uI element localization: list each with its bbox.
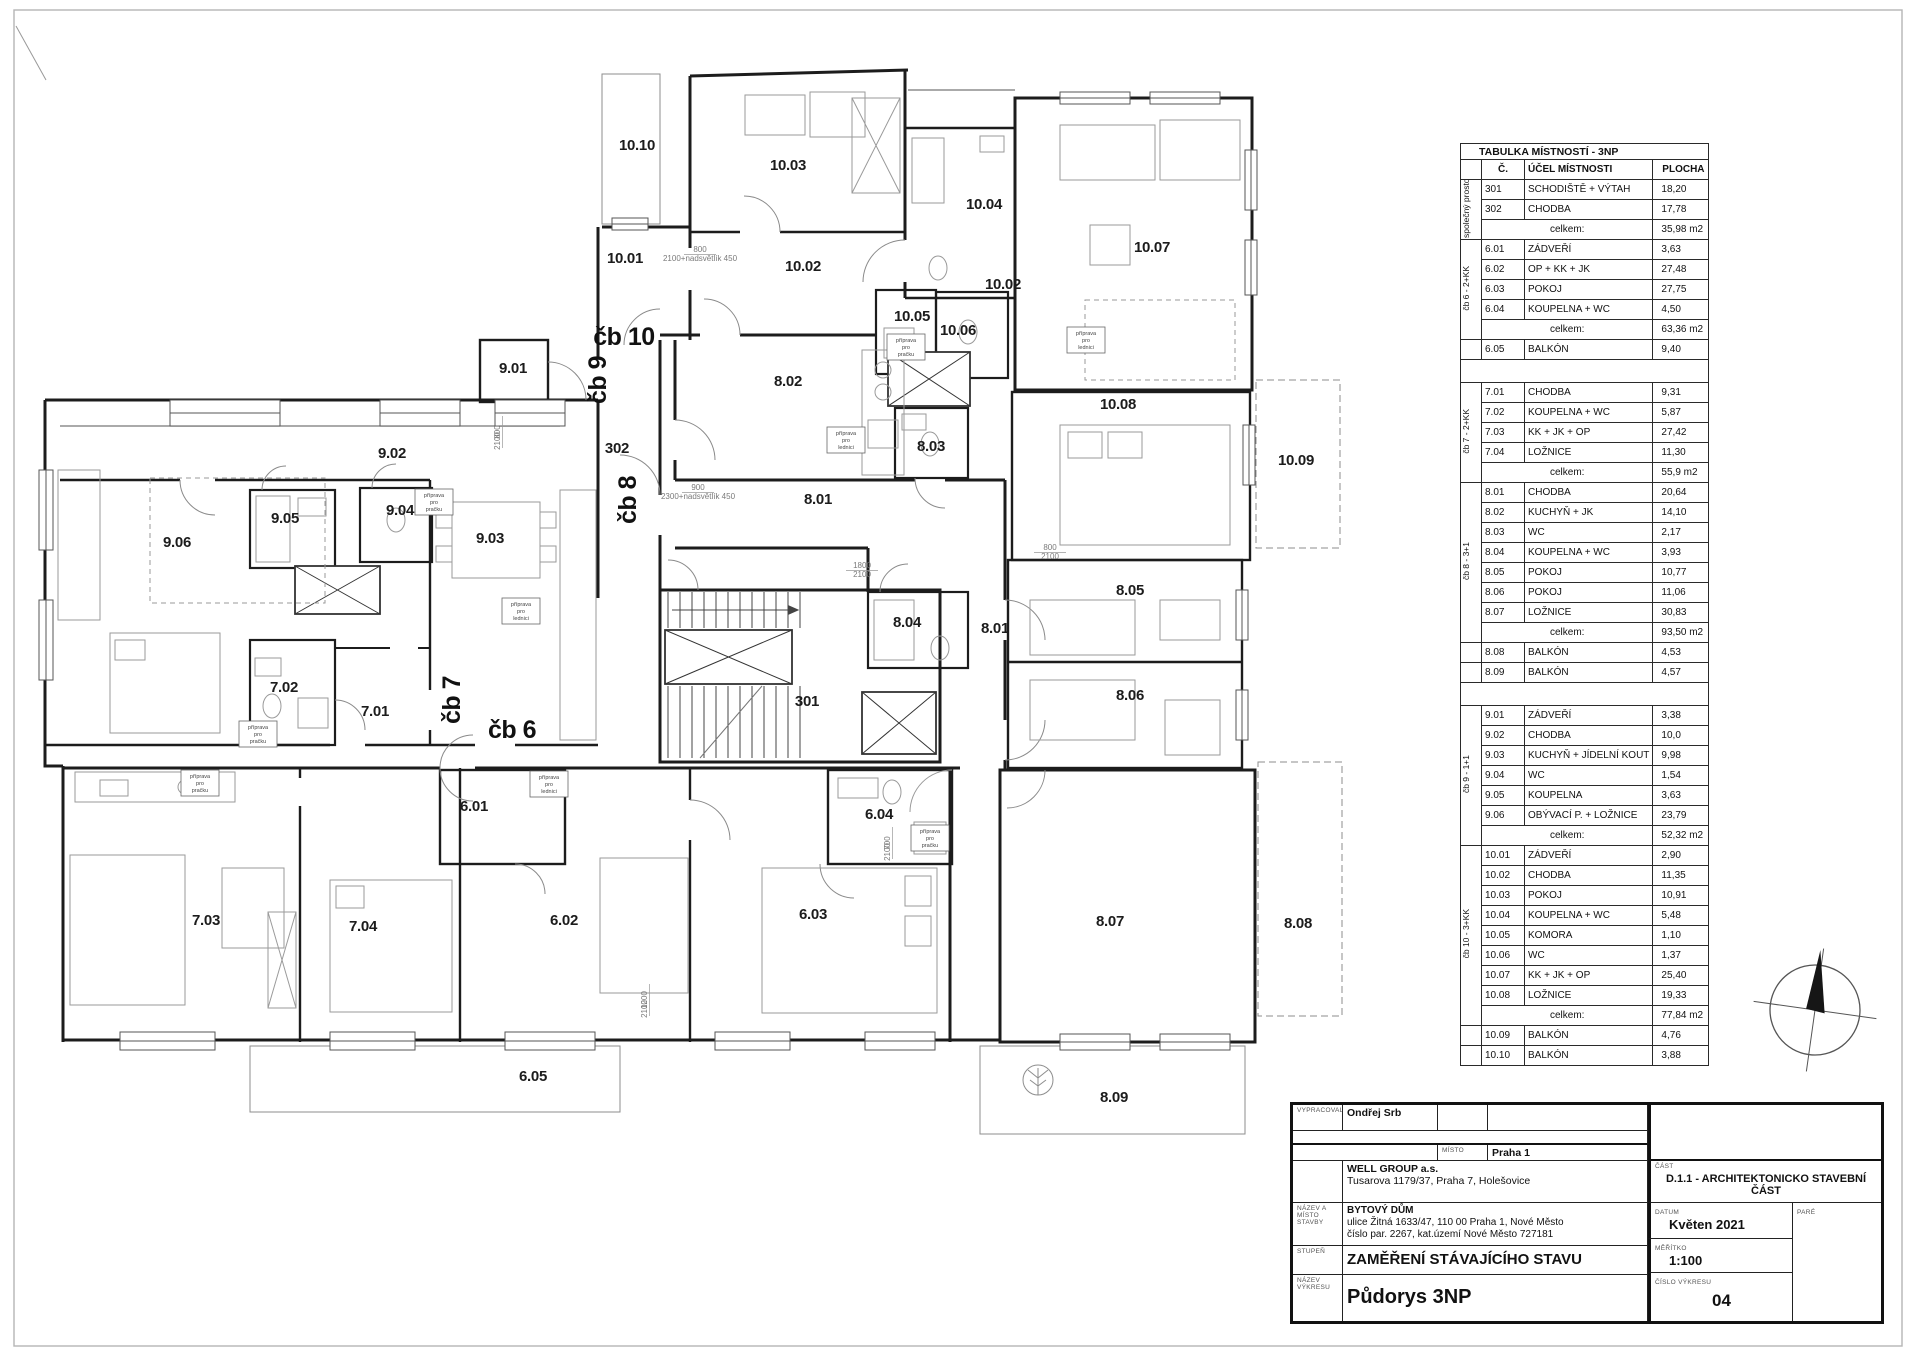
meritko-value: 1:100 — [1655, 1253, 1788, 1268]
prep-box-text: pro — [902, 345, 910, 351]
table-row: 8.03WC2,17 — [1461, 523, 1709, 543]
room-label: 6.02 — [550, 912, 578, 929]
table-row: společný prostor301SCHODIŠTĚ + VÝTAH18,2… — [1461, 180, 1709, 200]
room-label: 8.08 — [1284, 915, 1312, 932]
table-row: 8.04KOUPELNA + WC3,93 — [1461, 543, 1709, 563]
table-total-row: celkem:55,9 m2 — [1461, 463, 1709, 483]
nazev-stavby-label: NÁZEV A MÍSTO STAVBY — [1293, 1203, 1343, 1246]
room-labels-layer: 10.1010.0310.0410.0710.0110.0210.0210.05… — [163, 137, 1314, 1106]
table-total-row: celkem:93,50 m2 — [1461, 623, 1709, 643]
unit-label: čb 7 — [438, 676, 466, 724]
dimension-text: 2100 — [853, 570, 871, 579]
room-label: 6.03 — [799, 906, 827, 923]
room-label: 10.09 — [1278, 452, 1314, 469]
prep-box-text: pro — [196, 781, 204, 787]
dimension-text: 2100 — [493, 432, 502, 450]
table-row: 10.10BALKÓN3,88 — [1461, 1046, 1709, 1066]
prep-box-text: pro — [842, 438, 850, 444]
title-block: VYPRACOVAL Ondřej Srb MÍSTO Praha 1 WELL… — [1290, 1102, 1884, 1324]
table-row: 10.08LOŽNICE19,33 — [1461, 986, 1709, 1006]
room-label: 8.03 — [917, 438, 945, 455]
table-row: 6.02OP + KK + JK27,48 — [1461, 260, 1709, 280]
room-label: 8.04 — [893, 614, 922, 631]
prep-box-text: příprava — [1076, 331, 1097, 337]
table-row: 6.03POKOJ27,75 — [1461, 280, 1709, 300]
prep-box-text: lednici — [1078, 345, 1094, 351]
unit-label: čb 10 — [593, 323, 654, 351]
table-row: 9.03KUCHYŇ + JÍDELNÍ KOUT9,98 — [1461, 746, 1709, 766]
room-label: 10.08 — [1100, 396, 1136, 413]
room-label: 8.06 — [1116, 687, 1144, 704]
cast-label: ČÁST — [1655, 1163, 1877, 1170]
table-total-row: celkem:63,36 m2 — [1461, 320, 1709, 340]
table-row: 8.09BALKÓN4,57 — [1461, 663, 1709, 683]
investor-address: Tusarova 1179/37, Praha 7, Holešovice — [1347, 1175, 1643, 1187]
room-label: 7.01 — [361, 703, 389, 720]
room-label: 10.03 — [770, 157, 806, 174]
table-row: 8.06POKOJ11,06 — [1461, 583, 1709, 603]
room-label: 8.02 — [774, 373, 802, 390]
prep-box-text: pro — [926, 836, 934, 842]
datum-label: DATUM — [1655, 1209, 1679, 1216]
elevator-shaft-icon — [665, 630, 792, 684]
tree-icon — [1023, 1065, 1053, 1095]
table-row: 10.09BALKÓN4,76 — [1461, 1026, 1709, 1046]
table-spacer-row — [1461, 683, 1709, 706]
table-total-row: celkem:77,84 m2 — [1461, 1006, 1709, 1026]
doors-layer — [180, 196, 1045, 898]
table-row: 9.06OBÝVACÍ P. + LOŽNICE23,79 — [1461, 806, 1709, 826]
unit-label: čb 6 — [488, 716, 536, 744]
pare-label: PARÉ — [1797, 1209, 1815, 1216]
table-row: 8.05POKOJ10,77 — [1461, 563, 1709, 583]
room-label: 10.05 — [894, 308, 930, 325]
room-label: 10.01 — [607, 250, 643, 267]
room-label: 9.01 — [499, 360, 527, 377]
dimension-text: 2100 — [1041, 552, 1059, 561]
room-label: 7.03 — [192, 912, 220, 929]
nazev-vykresu-label: NÁZEV VÝKRESU — [1293, 1275, 1343, 1321]
prep-box-text: příprava — [920, 829, 941, 835]
dimension-text: 2300+nadsvětlík 450 — [661, 492, 736, 501]
prep-box-text: pro — [254, 732, 262, 738]
prep-box-text: příprava — [836, 431, 857, 437]
prep-box-text: pro — [545, 782, 553, 788]
building-address2: číslo par. 2267, kat.území Nové Město 72… — [1347, 1229, 1643, 1241]
prep-box-text: příprava — [248, 725, 269, 731]
prep-box-text: pračku — [922, 843, 939, 849]
group-label: čb 10 - 3+KK — [1461, 846, 1482, 1026]
dimension-text: 800 — [1043, 543, 1057, 552]
table-row: čb 6 - 2+KK6.01ZÁDVEŘÍ3,63 — [1461, 240, 1709, 260]
stupen-value: ZAMĚŘENÍ STÁVAJÍCÍHO STAVU — [1343, 1246, 1648, 1275]
building-address1: ulice Žitná 1633/47, 110 00 Praha 1, Nov… — [1347, 1217, 1643, 1229]
table-row: 6.05BALKÓN9,40 — [1461, 340, 1709, 360]
table-row: 7.03KK + JK + OP27,42 — [1461, 423, 1709, 443]
room-label: 8.01 — [981, 620, 1009, 637]
table-row: čb 9 - 1+19.01ZÁDVEŘÍ3,38 — [1461, 706, 1709, 726]
stupen-label: STUPEŇ — [1293, 1246, 1343, 1275]
room-label: 8.01 — [804, 491, 832, 508]
room-label: 9.06 — [163, 534, 191, 551]
col-header-purpose: ÚČEL MÍSTNOSTI — [1525, 160, 1653, 180]
table-row: 7.04LOŽNICE11,30 — [1461, 443, 1709, 463]
room-label: 6.05 — [519, 1068, 547, 1085]
prep-box-text: pračku — [898, 352, 915, 358]
table-row: 9.04WC1,54 — [1461, 766, 1709, 786]
table-row: 10.02CHODBA11,35 — [1461, 866, 1709, 886]
prep-box-text: příprava — [424, 493, 445, 499]
table-row: 7.02KOUPELNA + WC5,87 — [1461, 403, 1709, 423]
room-label: 9.05 — [271, 510, 299, 527]
vypracoval-label: VYPRACOVAL — [1293, 1105, 1343, 1131]
table-row: 302CHODBA17,78 — [1461, 200, 1709, 220]
table-total-row: celkem:35,98 m2 — [1461, 220, 1709, 240]
datum-value: Květen 2021 — [1655, 1217, 1788, 1232]
dimension-text: 800 — [693, 245, 707, 254]
cislo-vykresu-label: ČÍSLO VÝKRESU — [1655, 1279, 1711, 1286]
prep-box-text: pro — [1082, 338, 1090, 344]
room-table-title: TABULKA MÍSTNOSTÍ - 3NP — [1461, 144, 1709, 160]
room-table: TABULKA MÍSTNOSTÍ - 3NP Č. ÚČEL MÍSTNOST… — [1460, 143, 1709, 1066]
table-row: 10.04KOUPELNA + WC5,48 — [1461, 906, 1709, 926]
table-row: čb 7 - 2+KK7.01CHODBA9,31 — [1461, 383, 1709, 403]
room-label: 8.05 — [1116, 582, 1144, 599]
group-label: čb 6 - 2+KK — [1461, 240, 1482, 340]
room-label: 6.01 — [460, 798, 488, 815]
dimension-text: 2100+nadsvětlík 450 — [663, 254, 738, 263]
prep-box-text: pro — [430, 500, 438, 506]
prep-box-text: lednici — [838, 445, 854, 451]
room-label: 10.02 — [985, 276, 1021, 293]
misto-value: Praha 1 — [1488, 1145, 1648, 1161]
shaft-icon — [862, 692, 936, 754]
room-label: 301 — [795, 693, 819, 710]
table-spacer-row — [1461, 360, 1709, 383]
col-header-num: Č. — [1482, 160, 1525, 180]
table-row: 10.03POKOJ10,91 — [1461, 886, 1709, 906]
table-row: 10.06WC1,37 — [1461, 946, 1709, 966]
building-name: BYTOVÝ DŮM — [1347, 1205, 1643, 1217]
prep-box-text: příprava — [539, 775, 560, 781]
walls-layer — [45, 70, 1255, 1042]
table-row: 9.05KOUPELNA3,63 — [1461, 786, 1709, 806]
table-total-row: celkem:52,32 m2 — [1461, 826, 1709, 846]
prep-box-text: pračku — [250, 739, 267, 745]
table-row: čb 10 - 3+KK10.01ZÁDVEŘÍ2,90 — [1461, 846, 1709, 866]
room-label: 10.06 — [940, 322, 976, 339]
investor-name: WELL GROUP a.s. — [1347, 1163, 1643, 1175]
table-row: 8.02KUCHYŇ + JK14,10 — [1461, 503, 1709, 523]
compass-rose — [1745, 940, 1885, 1080]
room-label: 9.03 — [476, 530, 504, 547]
group-label: čb 8 - 3+1 — [1461, 483, 1482, 643]
prep-box-text: příprava — [190, 774, 211, 780]
cislo-vykresu-value: 04 — [1655, 1291, 1788, 1311]
room-label: 9.02 — [378, 445, 406, 462]
prep-box-text: pro — [517, 609, 525, 615]
dimension-text: 1800 — [853, 561, 871, 570]
table-row: 10.05KOMORA1,10 — [1461, 926, 1709, 946]
prep-box-text: lednici — [541, 789, 557, 795]
room-label: 8.09 — [1100, 1089, 1128, 1106]
room-label: 10.04 — [966, 196, 1003, 213]
prep-box-text: pračku — [426, 507, 443, 513]
north-needle — [1806, 949, 1833, 1013]
room-label: 9.04 — [386, 502, 415, 519]
dimension-text: 2100 — [883, 843, 892, 861]
room-label: 302 — [605, 440, 629, 457]
room-label: 10.07 — [1134, 239, 1170, 256]
unit-label: čb 8 — [614, 475, 642, 524]
room-label: 10.02 — [785, 258, 821, 275]
dimension-text: 2100 — [640, 1000, 649, 1018]
prep-box-text: pračku — [192, 788, 209, 794]
cast-value: D.1.1 - ARCHITEKTONICKO STAVEBNÍ ČÁST — [1655, 1173, 1877, 1197]
drawing-sheet: přípravapropračkupřípravapropračkupřípra… — [0, 0, 1920, 1358]
group-label: společný prostor — [1461, 180, 1482, 240]
group-label: čb 9 - 1+1 — [1461, 706, 1482, 846]
unit-label: čb 9 — [584, 356, 612, 404]
dimension-text: 900 — [691, 483, 705, 492]
prep-box-text: příprava — [511, 602, 532, 608]
drawing-title: Půdorys 3NP — [1343, 1275, 1648, 1321]
table-row: 6.04KOUPELNA + WC4,50 — [1461, 300, 1709, 320]
group-label: čb 7 - 2+KK — [1461, 383, 1482, 483]
room-label: 6.04 — [865, 806, 894, 823]
room-label: 10.10 — [619, 137, 655, 154]
table-row: 8.08BALKÓN4,53 — [1461, 643, 1709, 663]
col-header-area: PLOCHA — [1653, 160, 1709, 180]
corner-fold-mark — [16, 26, 46, 80]
room-label: 8.07 — [1096, 913, 1124, 930]
table-row: 8.07LOŽNICE30,83 — [1461, 603, 1709, 623]
table-row: 10.07KK + JK + OP25,40 — [1461, 966, 1709, 986]
vypracoval-value: Ondřej Srb — [1343, 1105, 1438, 1131]
prep-box-text: příprava — [896, 338, 917, 344]
room-label: 7.04 — [349, 918, 378, 935]
shaft-icon — [295, 566, 380, 614]
table-row: 9.02CHODBA10,0 — [1461, 726, 1709, 746]
misto-label: MÍSTO — [1438, 1145, 1488, 1161]
room-label: 7.02 — [270, 679, 298, 696]
prep-box-text: lednici — [513, 616, 529, 622]
meritko-label: MĚŘÍTKO — [1655, 1245, 1687, 1252]
table-row: čb 8 - 3+18.01CHODBA20,64 — [1461, 483, 1709, 503]
